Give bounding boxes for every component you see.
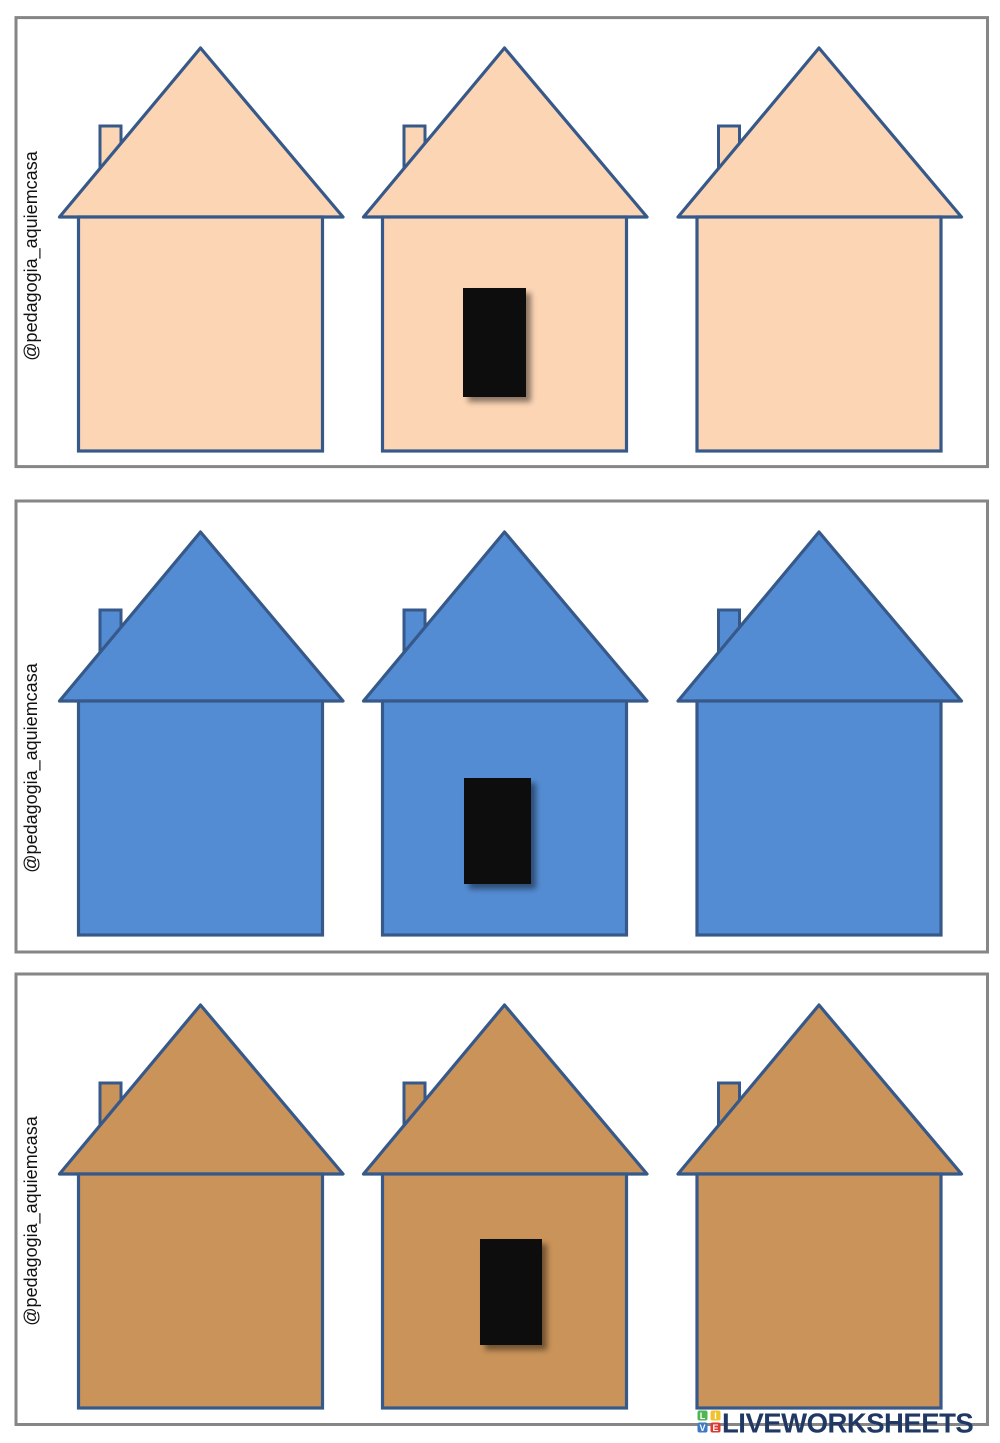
svg-text:LIVEWORKSHEETS: LIVEWORKSHEETS	[722, 1408, 973, 1439]
svg-text:I: I	[714, 1411, 717, 1421]
svg-text:@pedagogia_aquiemcasa: @pedagogia_aquiemcasa	[21, 150, 42, 360]
svg-text:E: E	[712, 1423, 718, 1433]
svg-text:L: L	[700, 1411, 706, 1421]
svg-text:@pedagogia_aquiemcasa: @pedagogia_aquiemcasa	[21, 662, 42, 872]
svg-text:@pedagogia_aquiemcasa: @pedagogia_aquiemcasa	[21, 1115, 42, 1325]
svg-text:V: V	[699, 1423, 705, 1433]
